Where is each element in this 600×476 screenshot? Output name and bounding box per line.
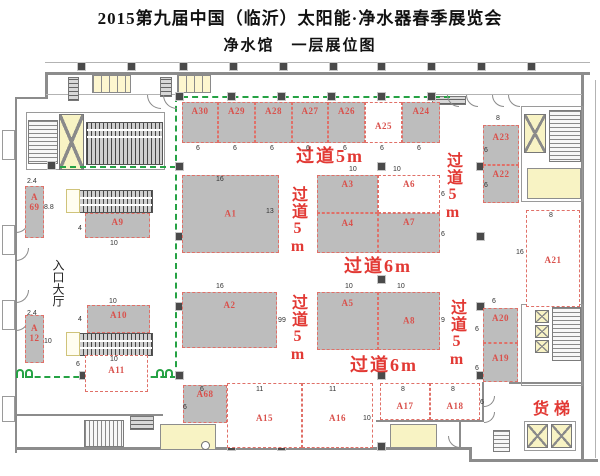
booth-label: A 12 <box>26 323 43 344</box>
dimension-label: 6 <box>480 399 484 406</box>
toilet-stalls <box>177 75 211 93</box>
dimension-label: 8 <box>401 386 405 393</box>
booth-A21: A21 <box>526 210 580 307</box>
dimension-label: 6 <box>484 147 488 154</box>
column <box>378 163 385 170</box>
dimension-label: 6 <box>233 145 237 152</box>
booth-label: A8 <box>379 315 439 325</box>
booth-A12: A 12 <box>25 315 44 363</box>
booth-label: A29 <box>219 106 254 116</box>
column <box>477 233 484 240</box>
booth-A10: A10 <box>87 305 150 333</box>
green-door-icon <box>25 369 33 378</box>
booth-A22: A22 <box>483 165 519 203</box>
column <box>176 93 183 100</box>
entrance-door-arc <box>16 248 29 261</box>
column <box>128 63 135 70</box>
stairs-right <box>552 307 581 361</box>
column <box>328 93 335 100</box>
booth-A2: A2 <box>182 292 277 348</box>
room-bottom-right <box>390 424 437 448</box>
booth-label: A6 <box>379 179 439 189</box>
green-door-icon <box>156 369 164 378</box>
floor-plan-page: 2015第九届中国（临沂）太阳能·净水器春季展览会 净水馆 一层展位图 入口大厅… <box>0 0 600 476</box>
stairs-bottom-left <box>84 420 124 447</box>
booth-label: A68 <box>184 389 226 399</box>
elevator <box>535 325 549 338</box>
dimension-label: 10 <box>109 298 117 305</box>
booth-A18: A18 <box>430 383 480 420</box>
dimension-label: 6 <box>76 361 80 368</box>
dimension-label: 16 <box>516 249 524 256</box>
round-column <box>201 441 210 450</box>
green-door-icon <box>165 369 173 378</box>
dimension-label: 6 <box>441 231 445 238</box>
dimension-label: 6 <box>200 386 204 393</box>
dimension-label: 2.4 <box>27 178 37 185</box>
dimension-label: 16 <box>216 283 224 290</box>
door-arc <box>492 95 504 107</box>
aisle-label: 过道6m <box>344 257 412 275</box>
column <box>378 276 385 283</box>
dimension-label: 16 <box>216 176 224 183</box>
column <box>278 93 285 100</box>
escalator-a9 <box>74 190 153 213</box>
freight-door-arc <box>484 412 495 423</box>
column <box>180 63 187 70</box>
elevator <box>535 310 549 323</box>
freight-lift <box>551 424 572 448</box>
aisle-label: 过道5m <box>444 152 460 222</box>
escalator-entrance <box>86 122 163 165</box>
booth-A26: A26 <box>328 102 365 143</box>
dimension-label: 10 <box>393 166 401 173</box>
booth-label: A15 <box>228 413 301 423</box>
booth-A1: A1 <box>182 175 279 253</box>
booth-A5: A5 <box>317 292 378 350</box>
booth-A6: A6 <box>378 175 440 213</box>
door-arc <box>447 95 459 107</box>
booth-label: A1 <box>183 208 278 218</box>
entrance-hall-label: 入口大厅 <box>50 259 67 307</box>
dimension-label: 6 <box>417 145 421 152</box>
column <box>176 372 183 379</box>
dimension-label: 9 <box>441 317 445 324</box>
column <box>330 63 337 70</box>
dimension-label: 10 <box>397 283 405 290</box>
booth-label: A3 <box>318 179 377 189</box>
column <box>78 63 85 70</box>
booth-label: A18 <box>431 401 479 411</box>
booth-A3: A3 <box>317 175 378 213</box>
freight-elevator-label: 货梯 <box>533 395 575 419</box>
booth-A69: A 69 <box>25 186 44 238</box>
dimension-label: 8.8 <box>44 204 54 211</box>
dimension-label: 6 <box>270 145 274 152</box>
stairs-top-left <box>28 120 58 164</box>
wall-right-outer <box>595 80 596 458</box>
column <box>428 63 435 70</box>
dimension-label: 6 <box>441 191 445 198</box>
dimension-label: 10 <box>349 166 357 173</box>
booth-label: A9 <box>86 217 149 227</box>
dimension-label: 10 <box>345 283 353 290</box>
column <box>378 443 385 450</box>
column <box>528 63 535 70</box>
booth-label: A20 <box>484 313 517 323</box>
fixture-bottom-left <box>130 416 154 430</box>
booth-A25: A25 <box>365 102 402 143</box>
column <box>230 63 237 70</box>
booth-A68: A68 <box>183 385 227 423</box>
duct-box <box>2 130 15 160</box>
freight-lift <box>527 424 548 448</box>
booth-A4: A4 <box>317 213 378 253</box>
booth-A23: A23 <box>483 125 519 165</box>
booth-label: A30 <box>183 106 217 116</box>
aisle-label: 过道5m <box>448 299 464 369</box>
booth-A15: A15 <box>227 383 302 448</box>
dimension-label: 6 <box>484 182 488 189</box>
dimension-label: 8 <box>496 115 500 122</box>
duct-box <box>2 396 15 422</box>
booth-A7: A7 <box>378 213 440 253</box>
booth-label: A19 <box>484 353 517 363</box>
column <box>378 63 385 70</box>
freight-door-arc <box>484 396 495 407</box>
column <box>176 163 183 170</box>
entrance-door-arc <box>16 290 29 303</box>
wall-left <box>15 97 17 453</box>
booth-label: A27 <box>293 106 327 116</box>
dimension-label: 6 <box>475 365 479 372</box>
dimension-label: 4 <box>78 316 82 323</box>
dimension-label: 6 <box>183 404 187 411</box>
door-arc <box>163 95 177 109</box>
dimension-label: 10 <box>44 338 52 345</box>
dimension-label: 13 <box>266 208 274 215</box>
column <box>48 162 55 169</box>
column <box>228 93 235 100</box>
wall-left-jog <box>15 97 47 99</box>
booth-A28: A28 <box>255 102 292 143</box>
toilet-fixture <box>68 77 79 101</box>
booth-label: A28 <box>256 106 291 116</box>
booth-label: A21 <box>527 255 579 265</box>
door-arc <box>147 95 161 109</box>
column <box>378 93 385 100</box>
floor-plan: 入口大厅 货梯 荣事达 Royalstar A30A29A28A27A26A25… <box>0 0 600 476</box>
stairs-freight <box>493 430 510 452</box>
booth-A20: A20 <box>483 308 518 343</box>
dimension-label: 6 <box>196 145 200 152</box>
duct-box <box>2 300 15 330</box>
booth-label: A10 <box>88 310 149 320</box>
path-green-entry <box>50 166 176 168</box>
aisle-label: 过道5m <box>289 186 305 256</box>
column <box>280 63 287 70</box>
aisle-label: 过道5m <box>289 294 305 364</box>
booth-A17: A17 <box>380 383 430 420</box>
column <box>478 63 485 70</box>
dimension-label: 11 <box>256 386 263 393</box>
column <box>428 93 435 100</box>
booth-A9: A9 <box>85 213 150 238</box>
booth-label: A25 <box>366 121 401 131</box>
booth-label: A16 <box>303 413 372 423</box>
green-door-icon <box>16 369 24 378</box>
duct-box <box>2 225 15 255</box>
escalator-a10 <box>74 333 153 356</box>
escalator-head <box>66 189 80 213</box>
booth-label: A23 <box>484 132 518 142</box>
dimension-label: 2.4 <box>27 310 37 317</box>
booth-label: A17 <box>381 401 429 411</box>
dimension-label: 11 <box>329 386 336 393</box>
dimension-label: 6 <box>475 326 479 333</box>
toilet-stalls <box>92 75 131 93</box>
wall-bottom-right-room <box>376 420 482 422</box>
toilet-fixture <box>160 77 172 97</box>
booth-label: A7 <box>379 217 439 227</box>
dimension-label: 10 <box>110 356 118 363</box>
wall-bottom-freight <box>469 459 598 462</box>
booth-A30: A30 <box>182 102 218 143</box>
dimension-label: 6 <box>380 145 384 152</box>
path-green-top <box>182 96 450 98</box>
elevator <box>59 114 84 170</box>
booth-A8: A8 <box>378 292 440 350</box>
booth-label: A11 <box>86 365 147 375</box>
booth-A27: A27 <box>292 102 328 143</box>
booth-label: A4 <box>318 218 377 228</box>
dimension-label: 8 <box>549 212 553 219</box>
dimension-label: 6 <box>492 298 496 305</box>
dimension-label: 9 <box>282 317 286 324</box>
dimension-label: 6 <box>343 145 347 152</box>
door-arc <box>466 95 478 107</box>
booth-label: A24 <box>403 106 439 116</box>
booth-A19: A19 <box>483 343 518 382</box>
elevator <box>524 114 546 153</box>
booth-label: A 69 <box>26 192 43 213</box>
dimension-label: 4 <box>78 225 82 232</box>
room-right <box>527 168 581 199</box>
dimension-label: 10 <box>110 240 118 247</box>
door-arc <box>508 95 520 107</box>
stairs-top-right <box>549 110 581 162</box>
booth-label: A22 <box>484 169 518 179</box>
dimension-label: 8 <box>451 386 455 393</box>
aisle-label: 过道6m <box>350 356 418 374</box>
dimension-label: 10 <box>363 415 371 422</box>
booth-label: A26 <box>329 106 364 116</box>
booth-label: A2 <box>183 300 276 310</box>
wall-top-outer <box>45 62 590 63</box>
booth-label: A5 <box>318 298 377 308</box>
dimension-label: 6 <box>306 145 310 152</box>
booth-A29: A29 <box>218 102 255 143</box>
escalator-head <box>66 332 80 356</box>
booth-A24: A24 <box>402 102 440 143</box>
elevator <box>535 340 549 353</box>
